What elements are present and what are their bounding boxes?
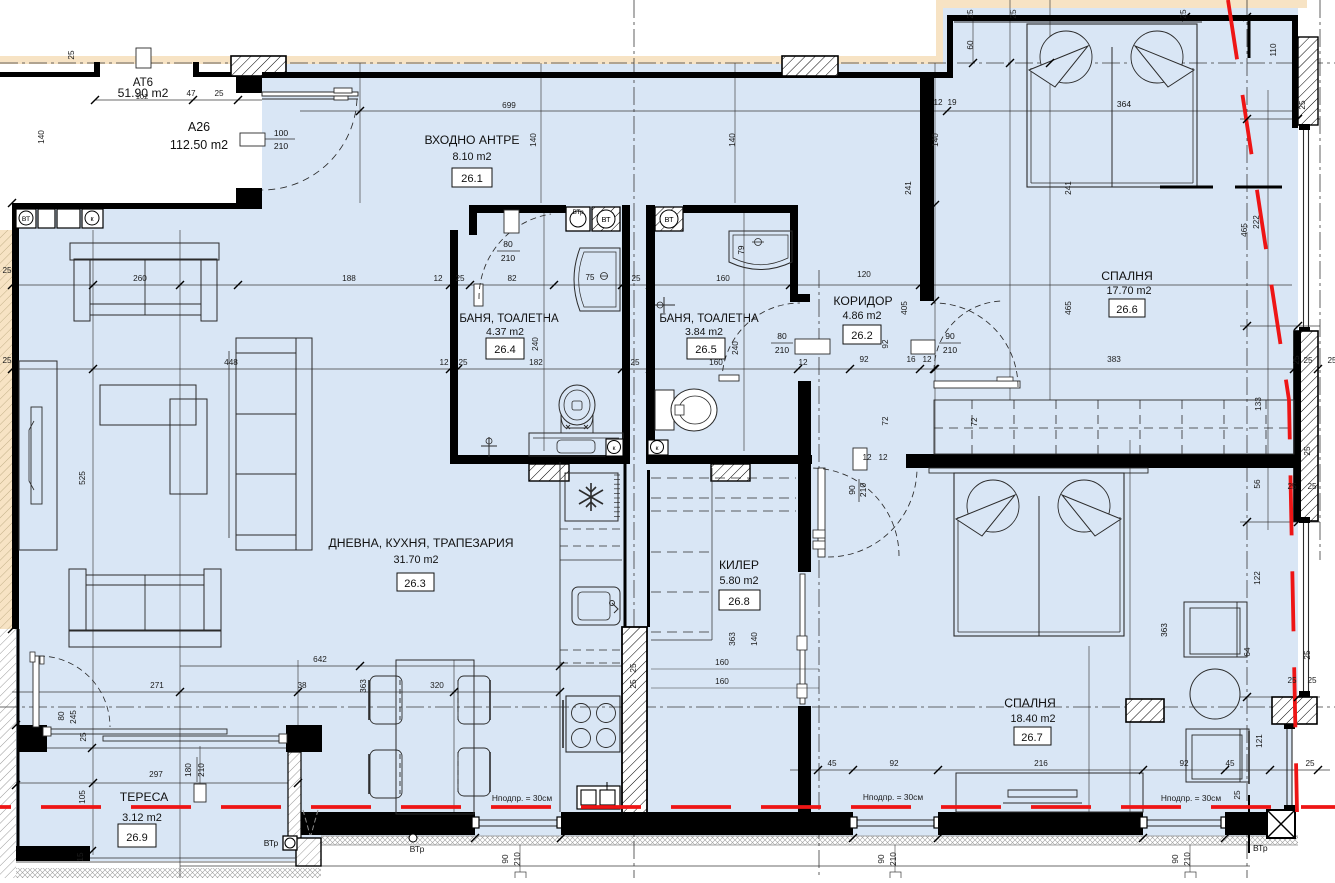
svg-text:ВТ: ВТ xyxy=(664,215,674,224)
svg-text:45: 45 xyxy=(1225,759,1235,768)
svg-text:26.4: 26.4 xyxy=(494,344,515,356)
svg-text:ВТ: ВТ xyxy=(22,216,30,223)
svg-text:25: 25 xyxy=(1298,100,1307,110)
svg-text:ВТр: ВТр xyxy=(264,838,279,848)
svg-text:72: 72 xyxy=(970,417,979,427)
svg-text:92: 92 xyxy=(1179,759,1189,768)
svg-text:25: 25 xyxy=(631,274,641,283)
svg-text:245: 245 xyxy=(69,710,78,724)
svg-text:297: 297 xyxy=(149,770,163,779)
svg-text:25: 25 xyxy=(1327,356,1335,365)
svg-text:26.8: 26.8 xyxy=(728,596,749,608)
svg-text:25: 25 xyxy=(1287,676,1297,685)
svg-text:82: 82 xyxy=(507,274,517,283)
svg-text:А26: А26 xyxy=(188,120,210,134)
svg-text:90: 90 xyxy=(945,331,955,341)
svg-text:112.50 m2: 112.50 m2 xyxy=(170,138,228,152)
svg-text:90: 90 xyxy=(501,854,510,864)
svg-text:241: 241 xyxy=(1064,181,1073,195)
svg-text:ВТр: ВТр xyxy=(1253,843,1268,853)
svg-text:ВТр: ВТр xyxy=(572,209,584,216)
svg-text:25: 25 xyxy=(629,663,638,673)
svg-text:26.1: 26.1 xyxy=(461,173,483,185)
svg-text:64: 64 xyxy=(1243,647,1252,657)
svg-text:363: 363 xyxy=(728,632,737,646)
svg-text:Нподпр. = 30см: Нподпр. = 30см xyxy=(1161,793,1222,803)
svg-text:110: 110 xyxy=(1269,43,1278,56)
svg-text:25: 25 xyxy=(2,356,12,365)
svg-text:642: 642 xyxy=(313,655,327,664)
svg-text:140: 140 xyxy=(37,130,46,144)
svg-text:26.9: 26.9 xyxy=(126,832,147,844)
svg-text:320: 320 xyxy=(430,681,444,690)
svg-text:100: 100 xyxy=(274,128,288,138)
svg-text:133: 133 xyxy=(1254,397,1263,411)
svg-text:75: 75 xyxy=(586,273,595,282)
svg-text:210: 210 xyxy=(513,852,522,866)
svg-text:210: 210 xyxy=(274,141,288,151)
svg-text:25: 25 xyxy=(67,50,76,60)
svg-text:ДНЕВНА, КУХНЯ, ТРАПЕЗАРИЯ: ДНЕВНА, КУХНЯ, ТРАПЕЗАРИЯ xyxy=(328,536,513,550)
svg-text:4.86 m2: 4.86 m2 xyxy=(842,310,881,322)
svg-text:525: 525 xyxy=(78,471,87,485)
svg-text:210: 210 xyxy=(197,763,206,777)
svg-text:ВТр: ВТр xyxy=(410,844,425,854)
svg-text:122: 122 xyxy=(1253,571,1262,585)
svg-text:140: 140 xyxy=(750,632,759,646)
svg-text:Нподпр. = 30см: Нподпр. = 30см xyxy=(492,793,553,803)
svg-text:25: 25 xyxy=(629,679,638,689)
svg-text:51.90 m2: 51.90 m2 xyxy=(118,86,169,100)
svg-text:Нподпр. = 30см: Нподпр. = 30см xyxy=(863,792,924,802)
svg-text:СПАЛНЯ: СПАЛНЯ xyxy=(1101,269,1153,283)
svg-text:12: 12 xyxy=(922,355,932,364)
svg-text:80: 80 xyxy=(503,239,513,249)
svg-text:25: 25 xyxy=(455,274,465,283)
svg-text:72: 72 xyxy=(881,416,890,426)
svg-text:160: 160 xyxy=(715,658,729,667)
svg-text:90: 90 xyxy=(1171,854,1180,864)
svg-text:240: 240 xyxy=(531,337,540,351)
svg-text:160: 160 xyxy=(716,274,730,283)
svg-text:56: 56 xyxy=(1253,479,1262,489)
svg-text:26.5: 26.5 xyxy=(695,344,716,356)
svg-text:210: 210 xyxy=(858,483,868,497)
svg-text:25: 25 xyxy=(1303,356,1313,365)
svg-text:к: к xyxy=(656,445,659,452)
svg-text:25: 25 xyxy=(214,89,224,98)
svg-text:12: 12 xyxy=(439,358,449,367)
svg-text:188: 188 xyxy=(342,274,356,283)
svg-text:25: 25 xyxy=(1292,355,1301,365)
svg-text:26.6: 26.6 xyxy=(1116,304,1137,316)
svg-text:160: 160 xyxy=(715,677,729,686)
svg-text:25: 25 xyxy=(79,732,88,742)
svg-text:140: 140 xyxy=(931,133,940,147)
svg-text:210: 210 xyxy=(501,253,515,263)
svg-text:12: 12 xyxy=(878,453,888,462)
svg-text:12: 12 xyxy=(798,358,808,367)
svg-text:363: 363 xyxy=(1160,623,1169,637)
svg-text:105: 105 xyxy=(78,790,87,804)
svg-text:19: 19 xyxy=(947,98,957,107)
svg-text:90: 90 xyxy=(847,485,857,495)
svg-text:383: 383 xyxy=(1107,355,1121,364)
svg-text:СПАЛНЯ: СПАЛНЯ xyxy=(1004,696,1056,710)
svg-text:25: 25 xyxy=(1307,482,1317,491)
svg-text:25: 25 xyxy=(1233,790,1242,800)
svg-text:260: 260 xyxy=(133,274,147,283)
svg-text:КОРИДОР: КОРИДОР xyxy=(833,294,892,308)
svg-text:45: 45 xyxy=(827,759,837,768)
svg-text:25: 25 xyxy=(966,9,975,19)
svg-text:25: 25 xyxy=(1307,676,1317,685)
svg-text:92: 92 xyxy=(881,339,890,349)
svg-text:448: 448 xyxy=(224,358,238,367)
svg-text:180: 180 xyxy=(184,763,193,777)
svg-text:25: 25 xyxy=(1303,446,1312,456)
svg-text:16: 16 xyxy=(906,355,916,364)
svg-text:271: 271 xyxy=(150,681,164,690)
svg-text:12: 12 xyxy=(433,274,443,283)
svg-text:25: 25 xyxy=(458,358,468,367)
svg-text:ВТ: ВТ xyxy=(601,215,611,224)
svg-text:31.70 m2: 31.70 m2 xyxy=(393,554,438,566)
svg-text:699: 699 xyxy=(502,101,516,110)
svg-text:17.70 m2: 17.70 m2 xyxy=(1106,285,1151,297)
svg-text:465: 465 xyxy=(1240,223,1249,237)
svg-text:210: 210 xyxy=(943,345,957,355)
svg-text:120: 120 xyxy=(857,270,871,279)
svg-text:25: 25 xyxy=(1009,9,1018,19)
svg-text:182: 182 xyxy=(529,358,543,367)
svg-text:222: 222 xyxy=(1252,215,1261,229)
svg-text:60: 60 xyxy=(966,40,975,50)
svg-text:90: 90 xyxy=(877,854,886,864)
svg-text:5.80 m2: 5.80 m2 xyxy=(719,575,758,587)
svg-text:ТЕРЕСА: ТЕРЕСА xyxy=(120,790,169,804)
svg-text:364: 364 xyxy=(1117,99,1131,109)
svg-text:ВХОДНО АНТРЕ: ВХОДНО АНТРЕ xyxy=(424,133,519,147)
svg-text:26.3: 26.3 xyxy=(404,578,425,590)
svg-text:25: 25 xyxy=(1303,650,1312,660)
svg-text:25: 25 xyxy=(1305,759,1315,768)
svg-text:4.37 m2: 4.37 m2 xyxy=(486,326,524,338)
svg-text:3.84 m2: 3.84 m2 xyxy=(685,326,723,338)
svg-text:25: 25 xyxy=(1287,482,1297,491)
svg-text:26.2: 26.2 xyxy=(851,330,872,342)
svg-text:12: 12 xyxy=(933,98,943,107)
svg-text:216: 216 xyxy=(1034,759,1048,768)
svg-text:25: 25 xyxy=(630,358,640,367)
svg-text:79: 79 xyxy=(737,245,746,254)
svg-text:26.7: 26.7 xyxy=(1021,732,1042,744)
svg-text:363: 363 xyxy=(359,679,368,693)
svg-text:241: 241 xyxy=(904,181,913,195)
svg-text:КИЛЕР: КИЛЕР xyxy=(719,558,759,572)
svg-text:38: 38 xyxy=(297,681,307,690)
svg-text:92: 92 xyxy=(859,355,869,364)
svg-text:к: к xyxy=(613,445,616,452)
svg-text:140: 140 xyxy=(529,133,538,147)
svg-text:240: 240 xyxy=(731,341,740,355)
svg-text:405: 405 xyxy=(900,301,909,315)
svg-text:160: 160 xyxy=(709,358,723,367)
svg-text:210: 210 xyxy=(889,852,898,866)
svg-text:92: 92 xyxy=(889,759,899,768)
svg-text:8.10 m2: 8.10 m2 xyxy=(452,151,491,163)
svg-text:25: 25 xyxy=(2,266,12,275)
svg-text:12: 12 xyxy=(862,453,872,462)
svg-text:80: 80 xyxy=(57,711,66,721)
svg-text:210: 210 xyxy=(1183,852,1192,866)
svg-text:18.40 m2: 18.40 m2 xyxy=(1010,713,1055,725)
svg-text:15: 15 xyxy=(76,852,85,862)
svg-text:47: 47 xyxy=(186,89,196,98)
svg-text:210: 210 xyxy=(775,345,789,355)
svg-text:3.12 m2: 3.12 m2 xyxy=(122,812,162,824)
svg-text:465: 465 xyxy=(1064,301,1073,315)
svg-text:80: 80 xyxy=(777,331,787,341)
svg-text:121: 121 xyxy=(1255,734,1264,748)
svg-text:25: 25 xyxy=(1179,9,1188,19)
svg-text:140: 140 xyxy=(728,133,737,147)
